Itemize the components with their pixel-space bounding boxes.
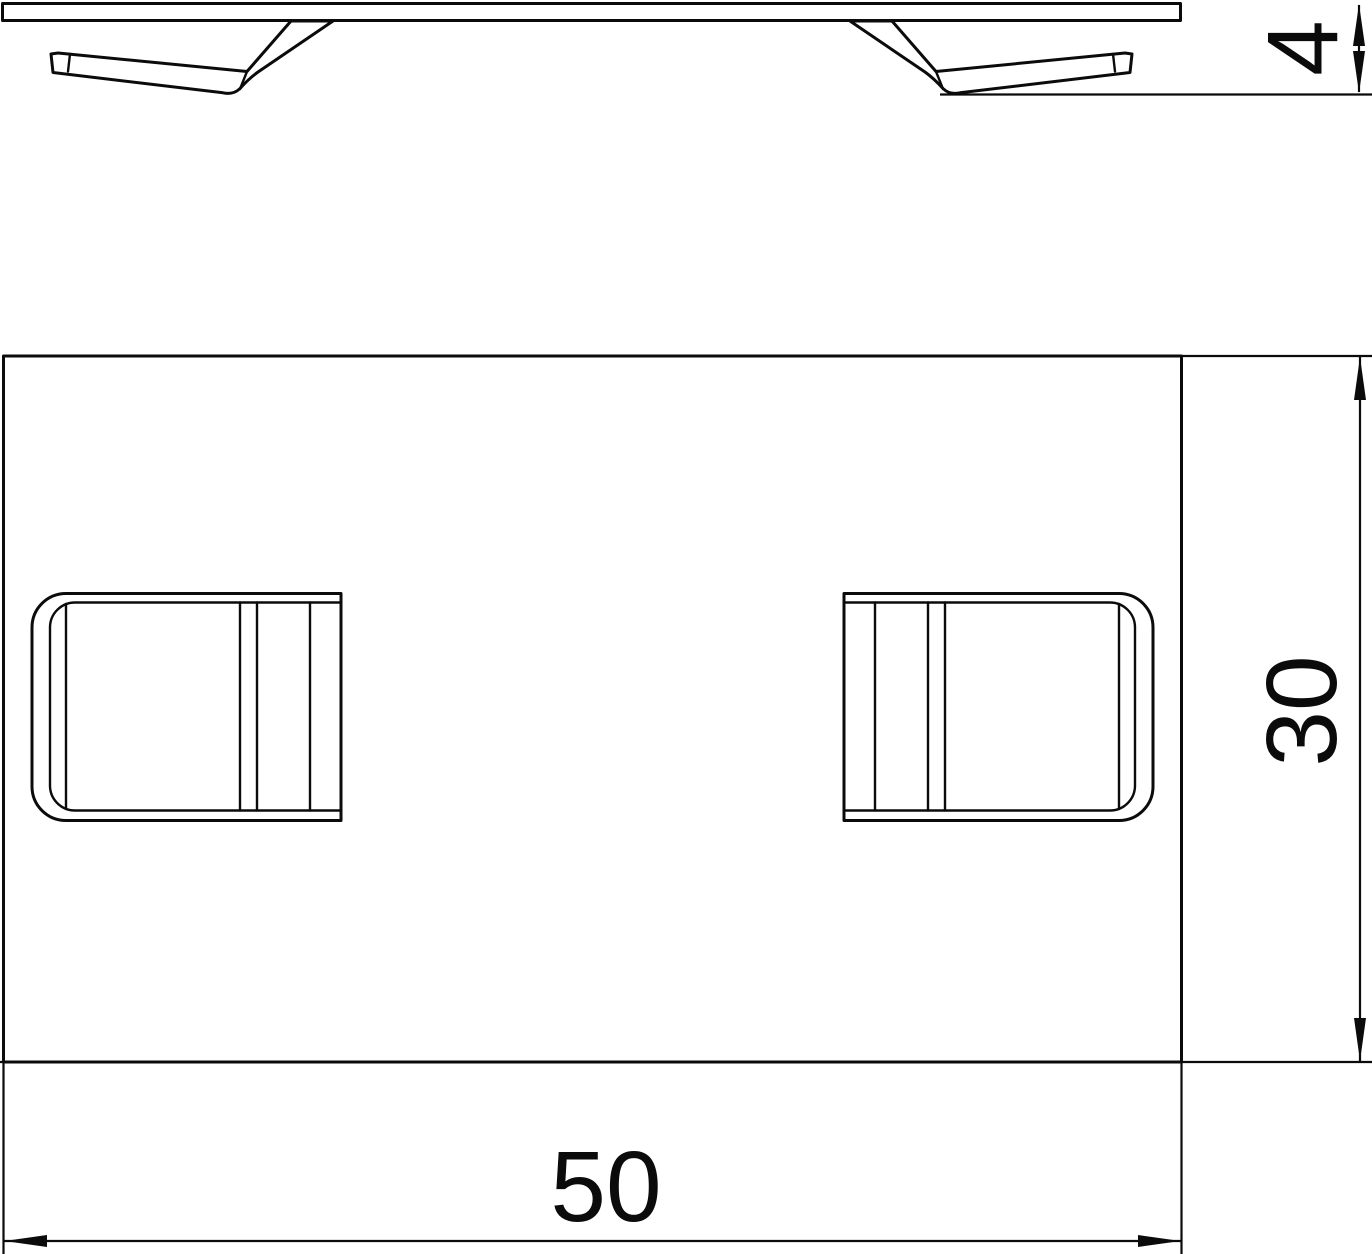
plate-bar-side <box>3 4 1181 21</box>
technical-drawing: 4 30 50 <box>0 0 1372 1254</box>
left-clip-slot <box>32 594 341 821</box>
right-clip-outline <box>850 21 1132 93</box>
height-arrow-down-icon <box>1354 1018 1366 1061</box>
drawing-canvas <box>0 0 1372 1254</box>
width-arrow-left-icon <box>5 1235 48 1247</box>
left-slot-outer-contour <box>32 594 341 821</box>
height-arrow-up-icon <box>1354 357 1366 400</box>
side-profile-view <box>3 4 1372 95</box>
thickness-dimension-label: 4 <box>1253 20 1353 76</box>
width-arrow-right-icon <box>1138 1235 1181 1247</box>
right-slot-outer-contour <box>844 594 1153 821</box>
plate-outline-plan <box>4 356 1182 1062</box>
right-retaining-clip <box>850 21 1132 93</box>
width-dimension-label: 50 <box>550 1137 661 1237</box>
top-plan-view <box>0 356 1372 1254</box>
right-slot-inner-contour <box>846 603 1136 811</box>
left-retaining-clip <box>51 21 333 93</box>
left-slot-inner-contour <box>50 603 340 811</box>
height-dimension-label: 30 <box>1252 655 1352 766</box>
right-clip-slot <box>844 594 1153 821</box>
left-clip-outline <box>51 21 333 93</box>
